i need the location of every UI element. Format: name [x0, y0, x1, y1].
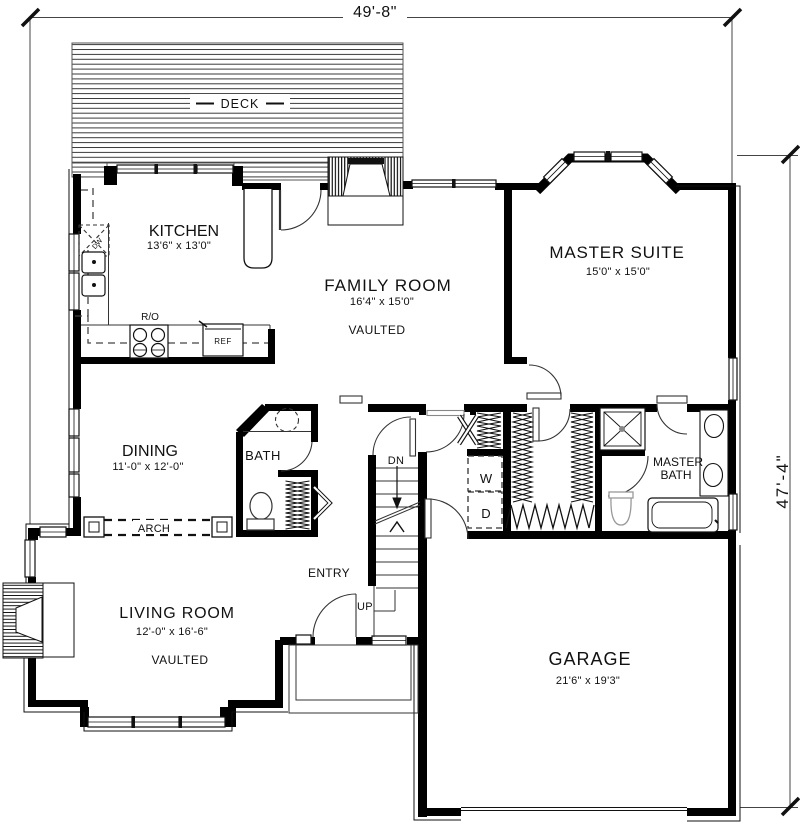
svg-text:BATH: BATH	[660, 468, 691, 482]
svg-text:47'-4": 47'-4"	[773, 453, 792, 508]
svg-text:11'-0" x 12'-0": 11'-0" x 12'-0"	[112, 461, 183, 473]
svg-text:13'6" x 13'0": 13'6" x 13'0"	[147, 240, 211, 252]
svg-text:DINING: DINING	[122, 443, 178, 460]
svg-text:ARCH: ARCH	[138, 523, 170, 535]
svg-text:R/O: R/O	[141, 312, 159, 323]
svg-text:MASTER SUITE: MASTER SUITE	[549, 243, 684, 262]
svg-text:16'4" x 15'0": 16'4" x 15'0"	[350, 296, 414, 308]
svg-text:GARAGE: GARAGE	[548, 649, 631, 669]
svg-text:15'0" x 15'0": 15'0" x 15'0"	[586, 266, 650, 278]
svg-text:BATH: BATH	[245, 448, 281, 463]
svg-text:ENTRY: ENTRY	[308, 566, 350, 580]
svg-text:21'6" x 19'3": 21'6" x 19'3"	[556, 675, 620, 687]
svg-text:W: W	[480, 471, 493, 486]
svg-text:UP: UP	[357, 601, 373, 613]
svg-text:49'-8": 49'-8"	[353, 4, 397, 21]
svg-text:DECK: DECK	[221, 97, 260, 111]
svg-text:DN: DN	[388, 455, 405, 467]
svg-text:VAULTED: VAULTED	[348, 323, 405, 337]
svg-text:12'-0" x 16'-6": 12'-0" x 16'-6"	[136, 626, 208, 638]
svg-text:FAMILY ROOM: FAMILY ROOM	[324, 276, 452, 295]
svg-text:VAULTED: VAULTED	[151, 653, 208, 667]
svg-text:D: D	[481, 506, 490, 521]
svg-text:MASTER: MASTER	[653, 455, 703, 469]
svg-text:LIVING ROOM: LIVING ROOM	[119, 605, 234, 622]
svg-text:REF: REF	[214, 337, 232, 346]
svg-text:KITCHEN: KITCHEN	[149, 223, 219, 240]
